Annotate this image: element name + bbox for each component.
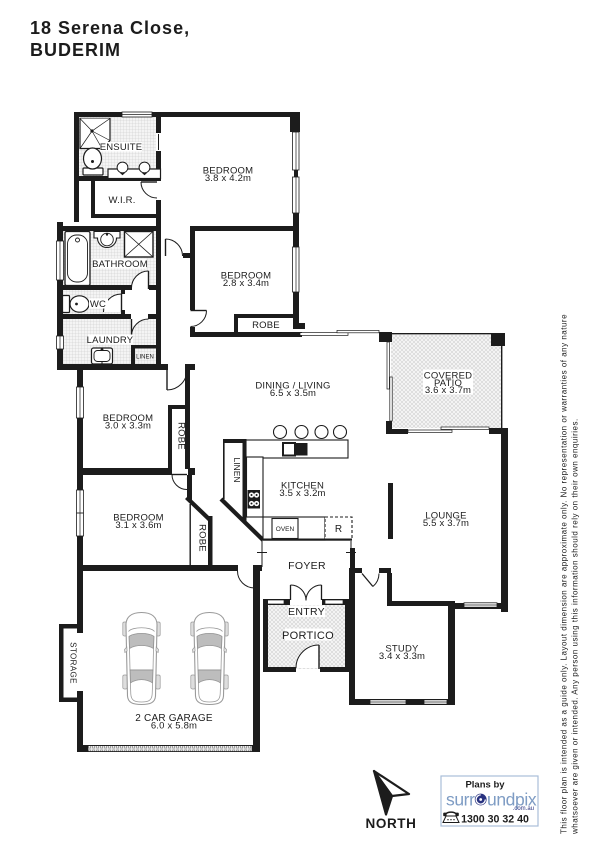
svg-text:6.0 x 5.8m: 6.0 x 5.8m [151, 721, 197, 732]
svg-text:ENTRY: ENTRY [288, 606, 325, 618]
svg-text:whatsoever are given or intend: whatsoever are given or intended. Any pe… [571, 418, 580, 835]
svg-text:R: R [335, 524, 342, 535]
svg-text:ROBE: ROBE [252, 320, 280, 331]
svg-text:.com.au: .com.au [513, 806, 534, 812]
svg-text:surr: surr [446, 790, 475, 810]
svg-text:W.I.R.: W.I.R. [108, 195, 135, 206]
svg-text:5.5 x 3.7m: 5.5 x 3.7m [423, 518, 469, 529]
svg-text:ENSUITE: ENSUITE [100, 142, 143, 153]
svg-text:ROBE: ROBE [197, 524, 208, 552]
svg-text:FOYER: FOYER [288, 560, 326, 572]
svg-text:3.6 x 3.7m: 3.6 x 3.7m [425, 385, 471, 396]
svg-text:NORTH: NORTH [366, 816, 417, 831]
svg-text:6.5 x 3.5m: 6.5 x 3.5m [270, 388, 316, 399]
svg-text:This floor plan is intended as: This floor plan is intended as a guide o… [560, 314, 569, 834]
svg-text:STORAGE: STORAGE [69, 642, 78, 684]
svg-text:WC: WC [90, 299, 106, 310]
svg-text:1300 30 32 40: 1300 30 32 40 [461, 814, 529, 826]
svg-text:OVEN: OVEN [276, 526, 295, 533]
svg-text:BUDERIM: BUDERIM [30, 40, 121, 60]
svg-text:3.5 x 3.2m: 3.5 x 3.2m [279, 488, 325, 499]
svg-text:PORTICO: PORTICO [282, 630, 334, 642]
svg-text:2.8 x 3.4m: 2.8 x 3.4m [223, 278, 269, 289]
svg-text:3.0 x 3.3m: 3.0 x 3.3m [105, 421, 151, 432]
svg-text:LAUNDRY: LAUNDRY [87, 335, 134, 346]
svg-text:3.1 x 3.6m: 3.1 x 3.6m [115, 520, 161, 531]
svg-text:LINEN: LINEN [232, 457, 242, 482]
svg-text:ROBE: ROBE [176, 422, 187, 450]
svg-text:18 Serena Close,: 18 Serena Close, [30, 18, 190, 38]
svg-text:LINEN: LINEN [136, 355, 154, 361]
svg-text:3.8 x 4.2m: 3.8 x 4.2m [205, 173, 251, 184]
svg-text:BATHROOM: BATHROOM [92, 259, 148, 270]
svg-text:3.4 x 3.3m: 3.4 x 3.3m [379, 651, 425, 662]
